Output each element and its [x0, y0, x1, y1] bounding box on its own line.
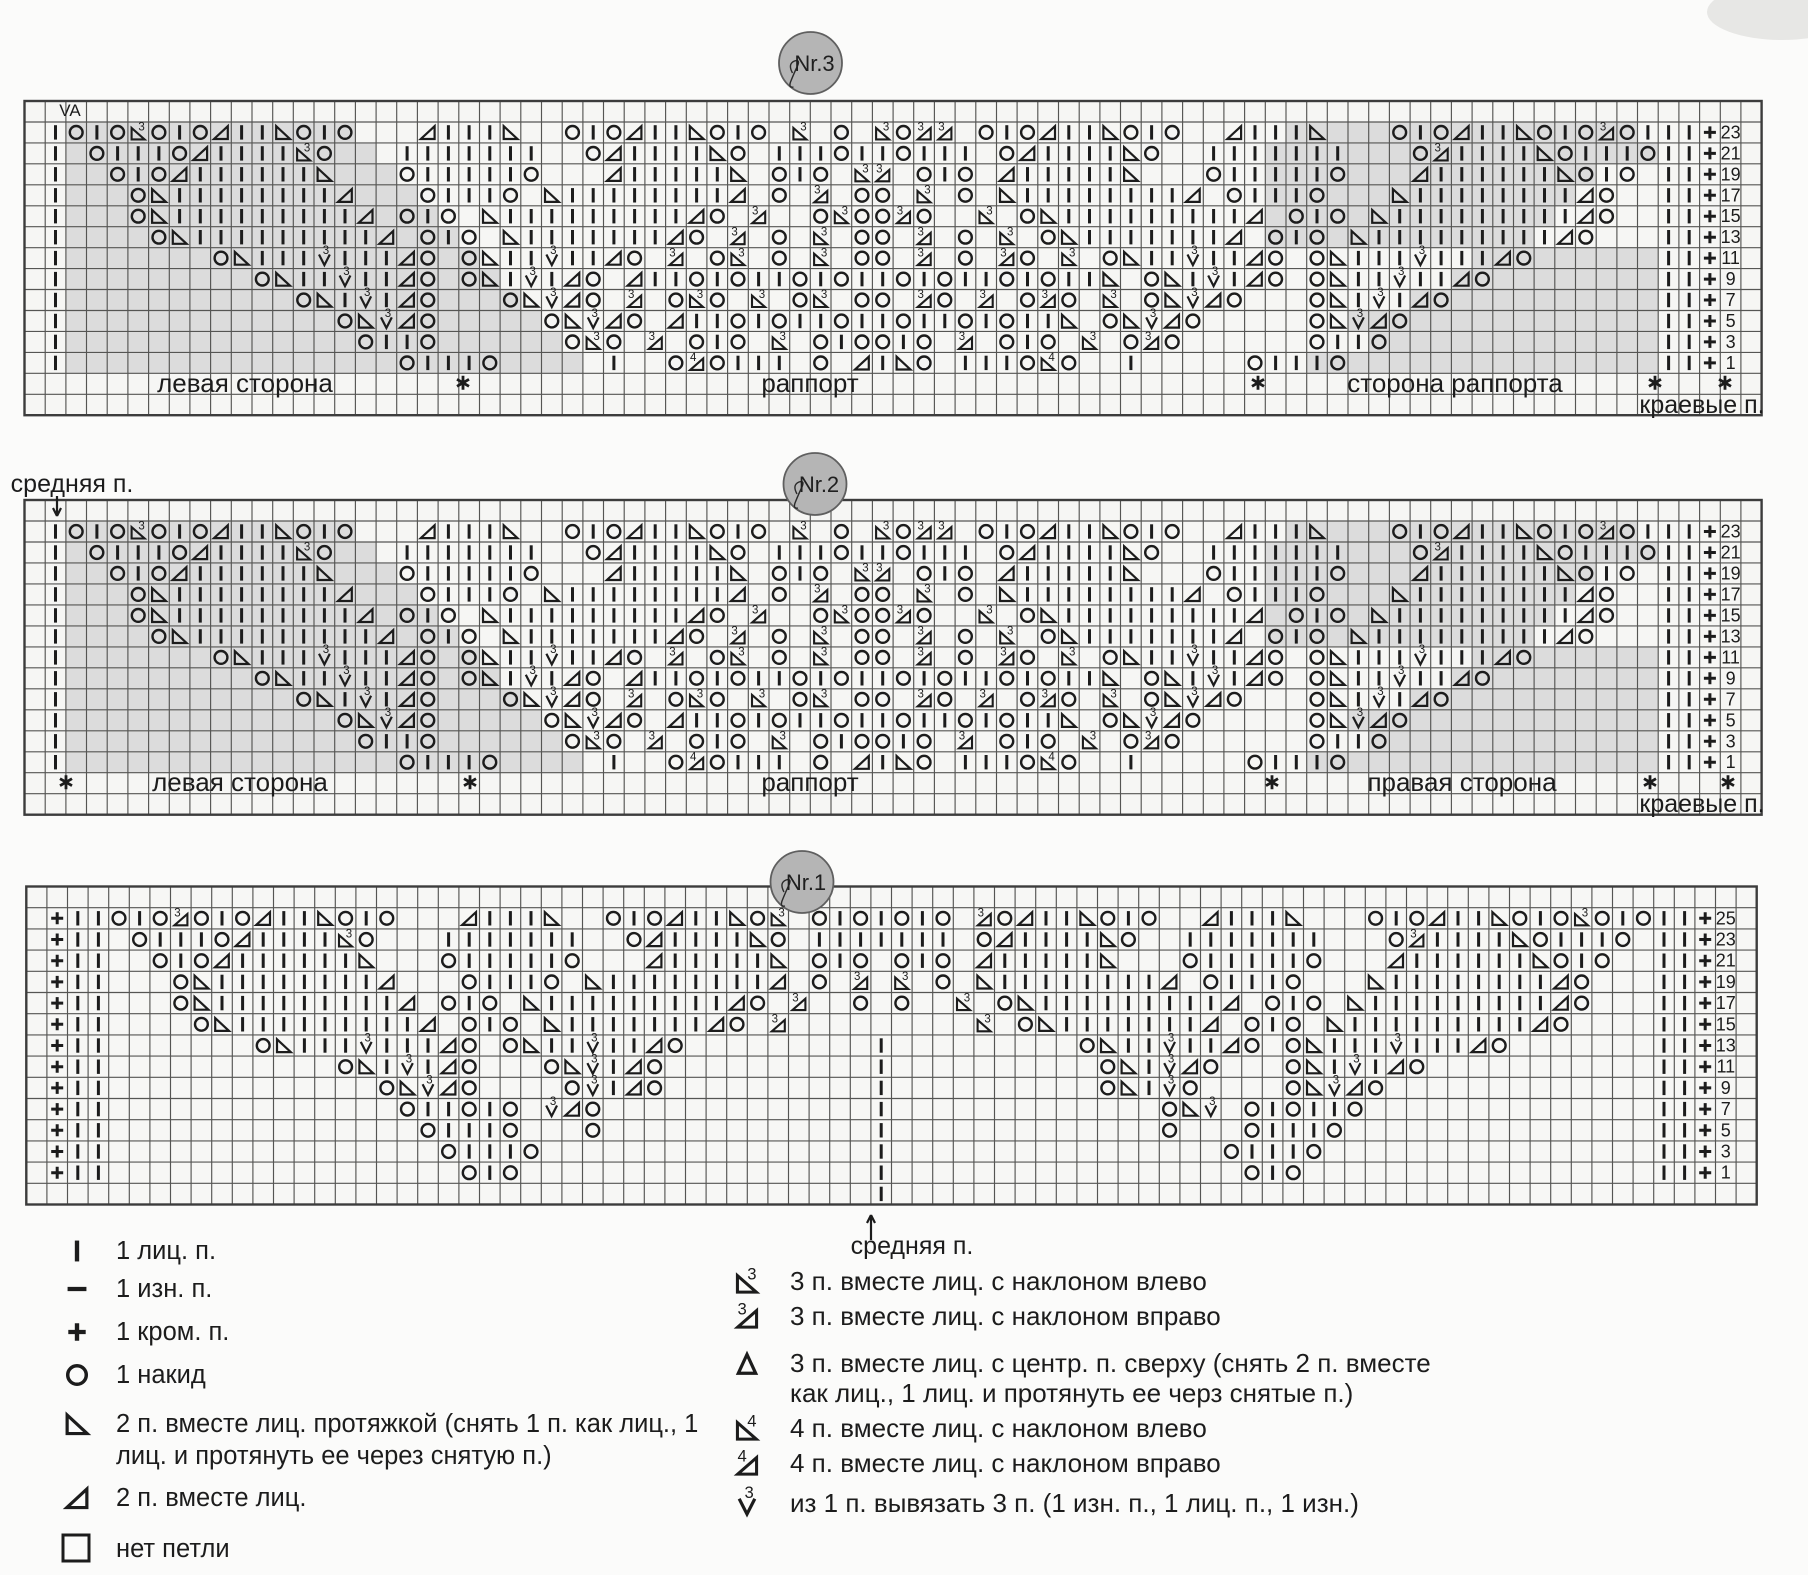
svg-text:средняя п.: средняя п. [11, 470, 134, 498]
svg-text:нет петли: нет петли [116, 1535, 230, 1563]
svg-text:21: 21 [1716, 951, 1736, 971]
svg-text:23: 23 [1721, 522, 1741, 542]
svg-text:3: 3 [1726, 731, 1736, 751]
svg-text:как лиц., 1 лиц. и протянуть е: как лиц., 1 лиц. и протянуть ее черз сня… [790, 1378, 1353, 1408]
svg-text:15: 15 [1716, 1014, 1736, 1034]
svg-text:из 1 п. вывязать 3 п. (1 изн.: из 1 п. вывязать 3 п. (1 изн. п., 1 лиц.… [790, 1488, 1359, 1518]
svg-text:15: 15 [1721, 605, 1741, 625]
svg-text:3: 3 [1726, 332, 1736, 352]
svg-text:1: 1 [1726, 353, 1736, 373]
svg-text:13: 13 [1716, 1036, 1736, 1056]
svg-text:сторона раппорта: сторона раппорта [1347, 368, 1563, 398]
svg-text:19: 19 [1721, 164, 1741, 184]
svg-text:краевые п.: краевые п. [1639, 391, 1764, 419]
svg-text:4 п. вместе лиц. с наклоном вл: 4 п. вместе лиц. с наклоном влево [790, 1413, 1207, 1443]
svg-text:19: 19 [1716, 972, 1736, 992]
svg-text:17: 17 [1721, 185, 1741, 205]
svg-text:23: 23 [1716, 930, 1736, 950]
svg-text:25: 25 [1716, 908, 1736, 928]
svg-text:11: 11 [1721, 647, 1740, 667]
svg-text:15: 15 [1721, 206, 1741, 226]
svg-text:13: 13 [1721, 227, 1741, 247]
svg-text:краевые п.: краевые п. [1639, 790, 1764, 818]
svg-text:11: 11 [1716, 1057, 1735, 1077]
svg-text:7: 7 [1726, 290, 1736, 310]
svg-text:13: 13 [1721, 626, 1741, 646]
svg-text:9: 9 [1726, 668, 1736, 688]
svg-text:17: 17 [1716, 993, 1736, 1013]
svg-text:1 кром. п.: 1 кром. п. [116, 1318, 229, 1346]
svg-text:правая сторона: правая сторона [1367, 767, 1557, 797]
svg-text:7: 7 [1721, 1099, 1731, 1119]
svg-text:5: 5 [1721, 1120, 1731, 1140]
svg-text:11: 11 [1721, 248, 1740, 268]
svg-text:1 изн. п.: 1 изн. п. [116, 1275, 212, 1303]
svg-text:21: 21 [1721, 543, 1741, 563]
svg-text:5: 5 [1726, 710, 1736, 730]
svg-text:17: 17 [1721, 584, 1741, 604]
svg-text:1 лиц. п.: 1 лиц. п. [116, 1237, 216, 1265]
svg-text:лиц. и протянуть ее через снят: лиц. и протянуть ее через снятую п.) [116, 1442, 552, 1470]
svg-text:3 п. вместе лиц. с наклоном вл: 3 п. вместе лиц. с наклоном влево [790, 1266, 1207, 1296]
svg-text:2 п. вместе лиц. протяжкой (сн: 2 п. вместе лиц. протяжкой (снять 1 п. к… [116, 1410, 698, 1438]
svg-text:7: 7 [1726, 689, 1736, 709]
svg-text:9: 9 [1726, 269, 1736, 289]
svg-text:1 накид: 1 накид [116, 1361, 206, 1389]
svg-text:3 п. вместе лиц. с наклоном вп: 3 п. вместе лиц. с наклоном вправо [790, 1301, 1221, 1331]
svg-text:средняя п.: средняя п. [851, 1232, 974, 1260]
svg-text:левая сторона: левая сторона [152, 767, 328, 797]
svg-text:4 п. вместе лиц. с наклоном вп: 4 п. вместе лиц. с наклоном вправо [790, 1448, 1221, 1478]
svg-text:1: 1 [1726, 752, 1736, 772]
svg-text:VA: VA [59, 101, 81, 120]
svg-text:Nr.1: Nr.1 [786, 870, 826, 895]
svg-text:Nr.3: Nr.3 [794, 51, 834, 76]
svg-text:раппорт: раппорт [761, 368, 858, 398]
svg-text:раппорт: раппорт [761, 767, 858, 797]
svg-text:3 п. вместе лиц. с центр. п. с: 3 п. вместе лиц. с центр. п. сверху (сня… [790, 1348, 1431, 1378]
svg-text:2 п. вместе лиц.: 2 п. вместе лиц. [116, 1484, 306, 1512]
svg-text:21: 21 [1721, 143, 1741, 163]
svg-text:1: 1 [1721, 1163, 1731, 1183]
svg-text:левая сторона: левая сторона [157, 368, 333, 398]
svg-text:19: 19 [1721, 563, 1741, 583]
svg-text:9: 9 [1721, 1078, 1731, 1098]
svg-text:3: 3 [1721, 1142, 1731, 1162]
svg-text:23: 23 [1721, 122, 1741, 142]
svg-text:Nr.2: Nr.2 [799, 472, 839, 497]
svg-text:5: 5 [1726, 311, 1736, 331]
